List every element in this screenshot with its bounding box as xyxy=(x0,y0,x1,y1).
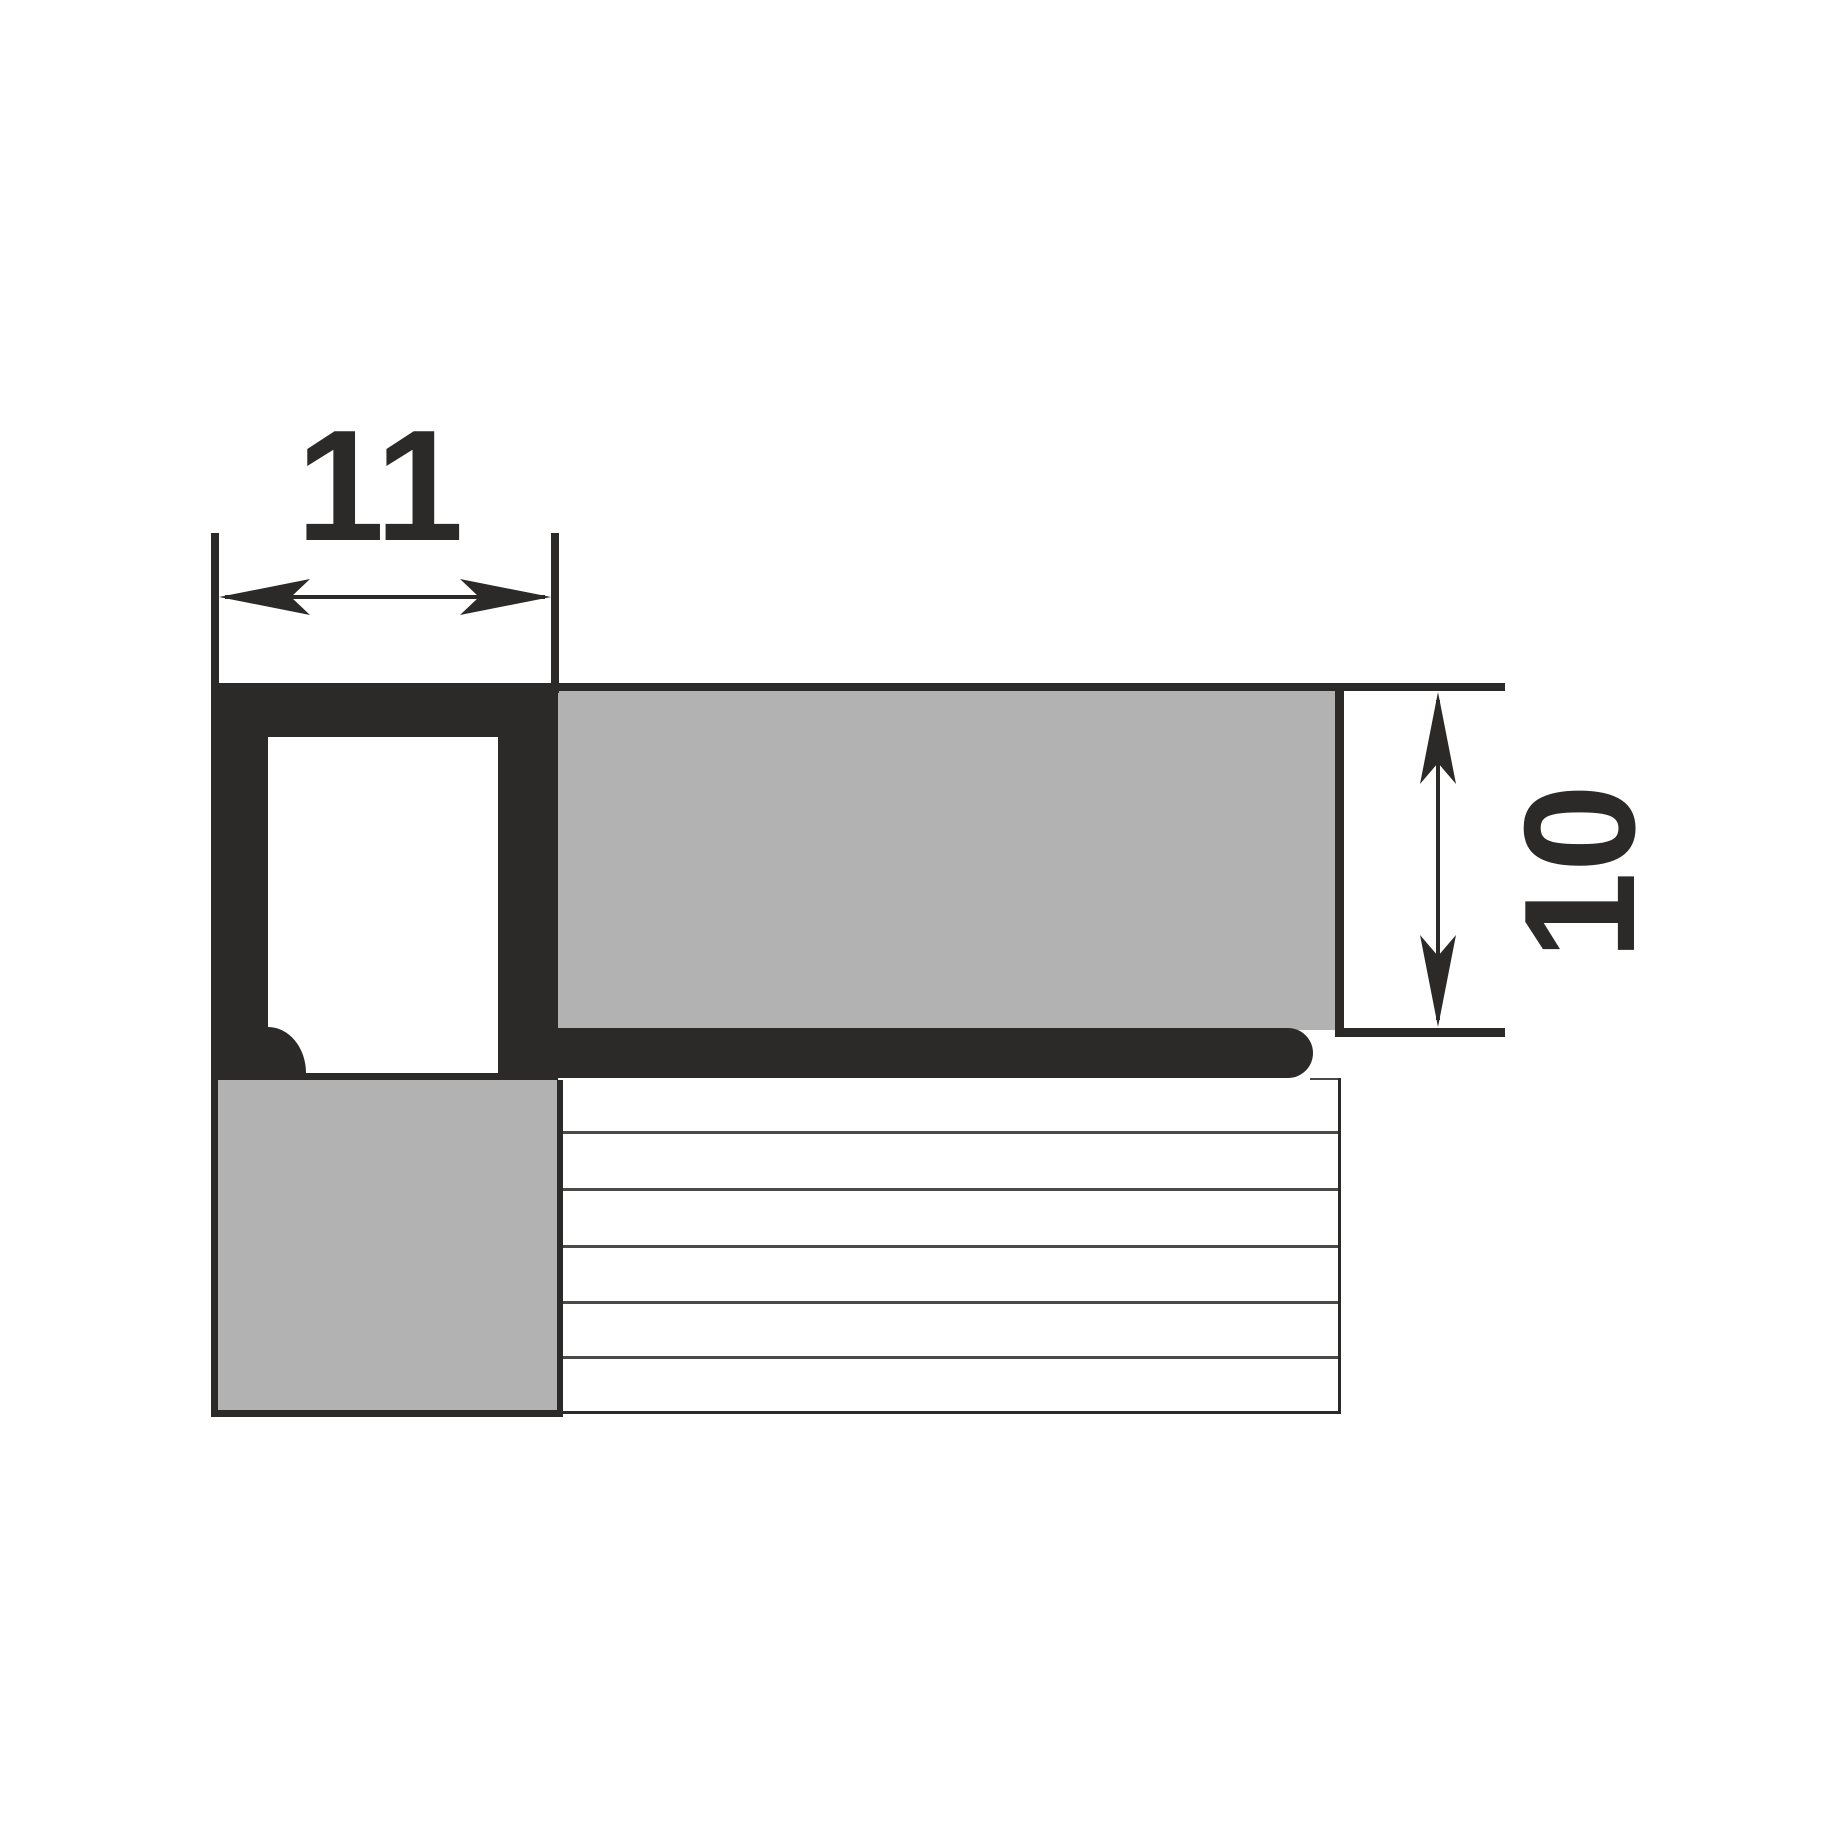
height-dimension-label: 10 xyxy=(1492,784,1668,960)
tile-bottom-fill xyxy=(218,1080,557,1410)
profile-tube xyxy=(211,683,558,1080)
substrate-row-line xyxy=(563,1301,1341,1304)
substrate-row-line xyxy=(563,1356,1341,1359)
substrate-row-line xyxy=(563,1188,1341,1191)
width-dimension-label: 11 xyxy=(296,398,463,574)
substrate-rows xyxy=(563,1078,1341,1414)
tile-top-edge-line xyxy=(550,683,1505,691)
substrate-right-border xyxy=(1338,1078,1341,1413)
tile-bottom xyxy=(211,1080,563,1417)
profile-cross-section-figure: 11 10 xyxy=(0,0,1834,1833)
substrate-row-line xyxy=(563,1131,1341,1134)
substrate-row-line xyxy=(563,1245,1341,1248)
profile-flange xyxy=(498,1028,1313,1078)
width-extension-line-right xyxy=(551,533,559,693)
width-extension-line-left xyxy=(211,533,219,685)
tile-bottom-edge-line xyxy=(1335,1028,1505,1037)
technical-drawing: 11 10 xyxy=(0,0,1834,1833)
tile-top-fill xyxy=(558,691,1335,1030)
tile-right-edge-line xyxy=(1335,685,1344,1037)
substrate-bottom-border xyxy=(563,1411,1341,1414)
substrate-row-line xyxy=(1310,1078,1341,1080)
profile-tube-cavity xyxy=(268,737,498,1073)
